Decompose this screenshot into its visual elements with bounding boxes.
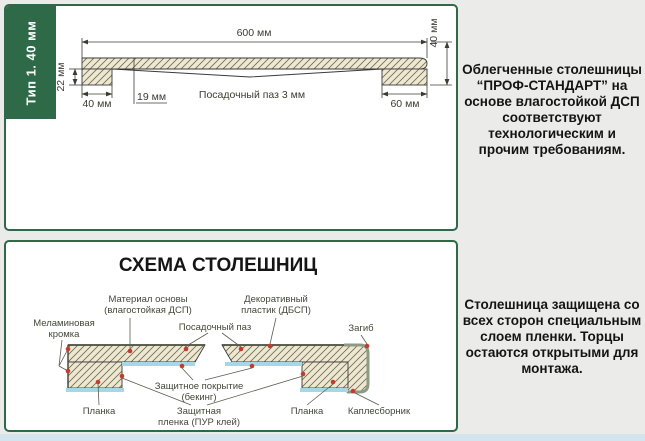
panel-schema: СХЕМА СТОЛЕШНИЦ bbox=[4, 240, 458, 432]
label-base-1: Материал основы bbox=[108, 294, 187, 305]
label-melamine-2: кромка bbox=[49, 329, 81, 340]
label-plastic-1: Декоративный bbox=[244, 294, 308, 305]
type1-drawing: 600 мм Посадочный паз 3 мм 19 мм bbox=[6, 6, 454, 227]
dim-40-left-label: 40 мм bbox=[82, 98, 111, 110]
schema-drawing: СХЕМА СТОЛЕШНИЦ bbox=[6, 242, 454, 428]
panel-type1: 600 мм Посадочный паз 3 мм 19 мм bbox=[4, 4, 458, 231]
dim-60: 60 мм bbox=[382, 85, 427, 110]
dim-22-label: 22 мм bbox=[55, 62, 67, 91]
label-coating-1: Защитное покрытие bbox=[155, 381, 244, 392]
schema-title: СХЕМА СТОЛЕШНИЦ bbox=[119, 255, 317, 276]
infographic-root: 600 мм Посадочный паз 3 мм 19 мм bbox=[0, 0, 645, 441]
label-base-2: (влагостойкая ДСП) bbox=[104, 305, 192, 316]
dim-40-right: 40 мм bbox=[428, 18, 452, 85]
schema-left-block bbox=[68, 362, 122, 388]
dim-60-label: 60 мм bbox=[390, 98, 419, 110]
dim-40-left: 40 мм bbox=[82, 85, 112, 110]
groove-label: Посадочный паз 3 мм bbox=[199, 89, 305, 101]
left-block bbox=[82, 69, 112, 85]
film-right-slab bbox=[225, 362, 302, 366]
type-badge-label: Тип 1. 40 мм bbox=[24, 20, 39, 105]
label-drip: Каплесборник bbox=[348, 406, 411, 417]
dim-600-label: 600 мм bbox=[237, 27, 272, 39]
label-plastic-2: пластик (ДБСП) bbox=[241, 305, 311, 316]
label-groove: Посадочный паз bbox=[179, 322, 251, 333]
label-plank-right: Планка bbox=[291, 406, 324, 417]
dim-22: 22 мм bbox=[55, 62, 82, 91]
dim-40-right-label: 40 мм bbox=[428, 18, 440, 47]
label-coating-2: (бекинг) bbox=[181, 392, 216, 403]
label-film-2: пленка (ПУР клей) bbox=[158, 417, 240, 428]
label-plank-left: Планка bbox=[83, 406, 116, 417]
film-left-block bbox=[66, 388, 124, 392]
schema-right-block bbox=[302, 362, 348, 388]
label-bend: Загиб bbox=[348, 323, 374, 334]
label-melamine-1: Меламиновая bbox=[33, 318, 95, 329]
right-block bbox=[382, 69, 427, 85]
type-badge: Тип 1. 40 мм bbox=[6, 6, 56, 119]
dim-19-label: 19 мм bbox=[137, 91, 166, 103]
description-type1: Облегченные столешницы “ПРОФ-СТАНДАРТ” н… bbox=[462, 62, 642, 158]
bottom-strip bbox=[0, 434, 645, 441]
groove-line bbox=[112, 69, 382, 77]
description-schema: Столешница защищена со всех сторон специ… bbox=[462, 297, 642, 377]
dim-600: 600 мм bbox=[82, 27, 427, 58]
label-film-1: Защитная bbox=[177, 406, 221, 417]
